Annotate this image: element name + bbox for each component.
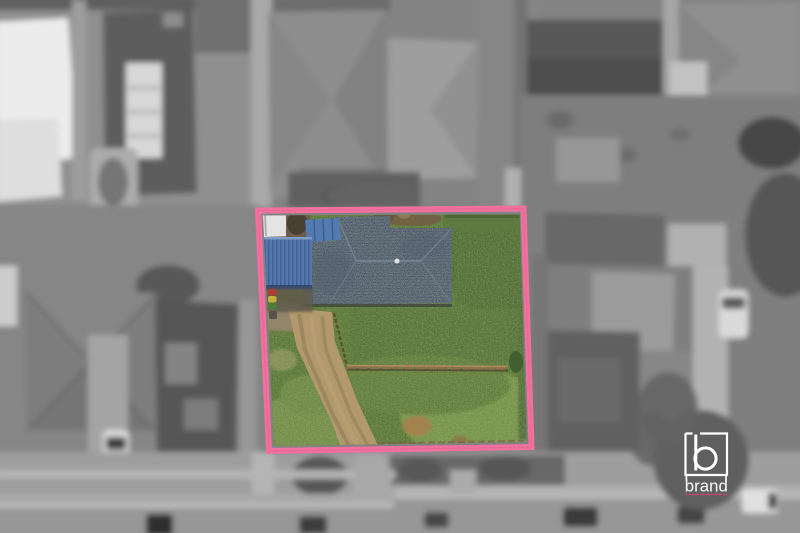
svg-text:brand: brand bbox=[685, 477, 728, 496]
